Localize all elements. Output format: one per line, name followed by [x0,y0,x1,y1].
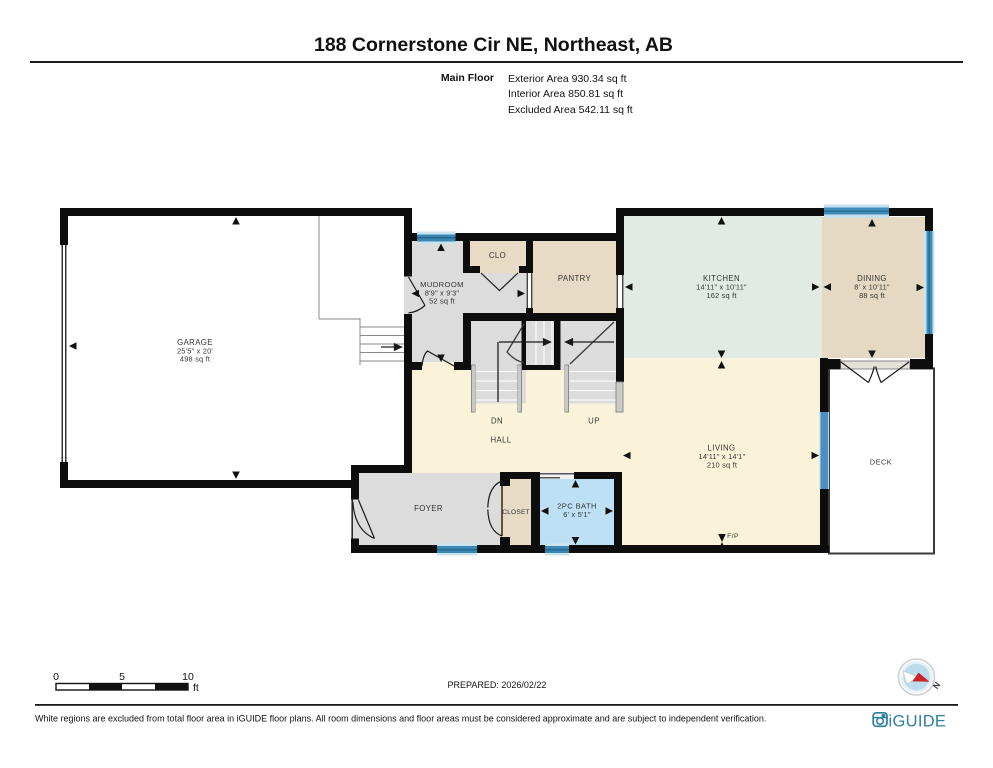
svg-text:210 sq ft: 210 sq ft [707,461,737,470]
svg-text:5: 5 [119,671,125,683]
svg-text:FOYER: FOYER [414,504,443,513]
svg-text:DINING: DINING [857,274,887,283]
svg-text:PANTRY: PANTRY [558,274,592,283]
svg-text:HALL: HALL [490,436,511,445]
svg-text:2PC BATH: 2PC BATH [557,501,597,510]
svg-text:iGUIDE: iGUIDE [889,713,947,731]
svg-text:N: N [931,680,943,691]
svg-text:DECK: DECK [870,458,892,467]
svg-text:F/P: F/P [727,533,739,540]
svg-text:PREPARED: 2026/02/22: PREPARED: 2026/02/22 [448,680,547,690]
svg-text:CLO: CLO [489,251,506,260]
svg-text:52 sq ft: 52 sq ft [429,297,455,306]
svg-text:KITCHEN: KITCHEN [703,274,740,283]
svg-text:0: 0 [53,671,59,683]
svg-text:DN: DN [491,417,503,426]
svg-text:ft: ft [193,682,199,694]
svg-text:6' x 5'1": 6' x 5'1" [563,510,591,519]
svg-text:CLOSET: CLOSET [502,509,530,516]
svg-text:162 sq ft: 162 sq ft [706,291,736,300]
svg-text:498 sq ft: 498 sq ft [180,355,210,364]
svg-text:UP: UP [588,417,600,426]
svg-text:LIVING: LIVING [708,443,736,452]
svg-text:White regions are excluded fro: White regions are excluded from total fl… [35,714,766,724]
svg-text:88 sq ft: 88 sq ft [859,291,885,300]
